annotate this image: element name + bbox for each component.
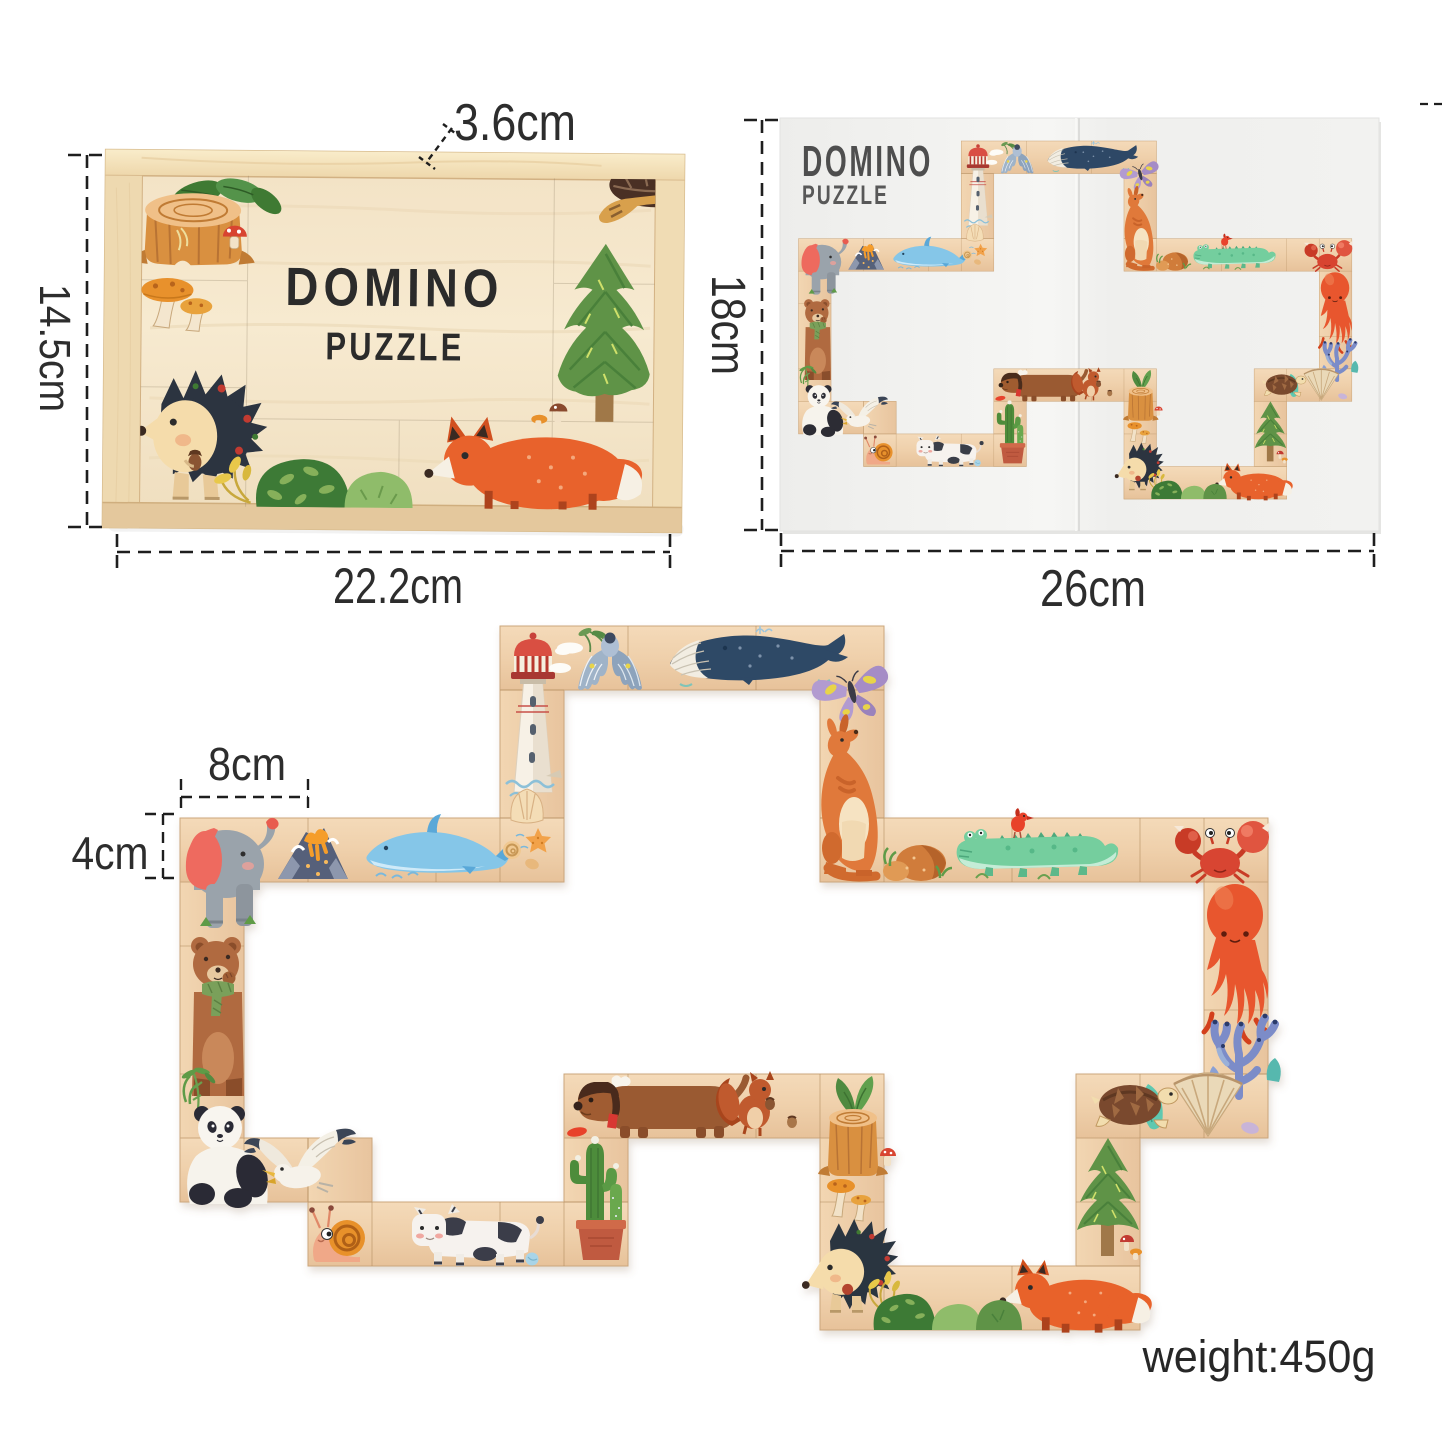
svg-text:18cm: 18cm: [701, 275, 754, 375]
svg-text:4cm: 4cm: [72, 827, 149, 879]
svg-text:PUZZLE: PUZZLE: [802, 180, 889, 210]
svg-text:DOMINO: DOMINO: [285, 257, 504, 319]
svg-text:DOMINO: DOMINO: [802, 137, 933, 186]
svg-text:PUZZLE: PUZZLE: [325, 325, 464, 369]
svg-text:22.2cm: 22.2cm: [333, 558, 463, 614]
svg-text:14.5cm: 14.5cm: [30, 284, 79, 412]
svg-text:3.6cm: 3.6cm: [454, 94, 576, 152]
svg-text:8cm: 8cm: [208, 738, 286, 790]
svg-text:weight:450g: weight:450g: [1142, 1331, 1376, 1382]
svg-text:26cm: 26cm: [1040, 560, 1146, 618]
